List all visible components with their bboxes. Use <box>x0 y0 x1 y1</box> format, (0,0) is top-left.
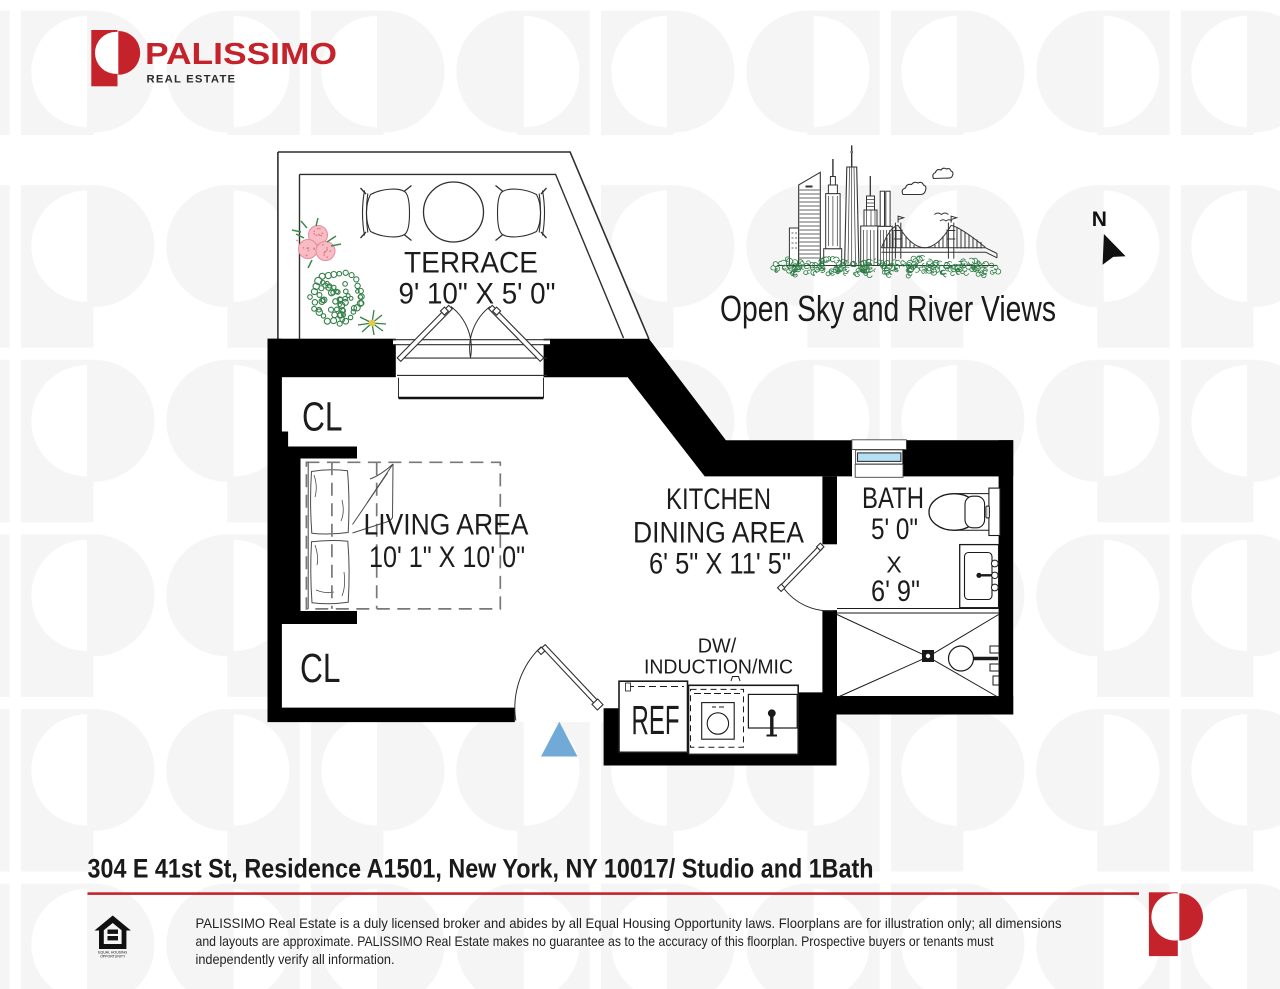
svg-text:6' 9": 6' 9" <box>871 575 920 608</box>
svg-text:INDUCTION/MIC: INDUCTION/MIC <box>644 657 793 679</box>
svg-text:DW/: DW/ <box>698 636 737 658</box>
svg-text:Open Sky and River Views: Open Sky and River Views <box>720 288 1056 329</box>
svg-text:OPPORTUNITY: OPPORTUNITY <box>100 954 126 958</box>
svg-text:CL: CL <box>300 645 341 691</box>
svg-text:5' 0": 5' 0" <box>871 513 918 546</box>
svg-text:X: X <box>886 552 901 578</box>
svg-text:independently verify all infor: independently verify all information. <box>196 952 395 967</box>
svg-text:PALISSIMO Real Estate is a dul: PALISSIMO Real Estate is a duly licensed… <box>196 916 1062 931</box>
svg-text:KITCHEN: KITCHEN <box>666 483 771 516</box>
svg-text:CL: CL <box>302 394 343 440</box>
svg-text:PALISSIMO: PALISSIMO <box>145 37 337 71</box>
svg-text:REAL ESTATE: REAL ESTATE <box>147 74 237 86</box>
svg-text:6' 5" X 11' 5": 6' 5" X 11' 5" <box>649 548 791 581</box>
svg-text:REF: REF <box>632 697 680 743</box>
svg-text:LIVING AREA: LIVING AREA <box>364 509 529 542</box>
svg-text:DINING AREA: DINING AREA <box>633 517 804 550</box>
svg-text:and layouts are approximate. P: and layouts are approximate. PALISSIMO R… <box>196 934 994 949</box>
svg-text:304 E 41st St, Residence A1501: 304 E 41st St, Residence A1501, New York… <box>88 854 874 884</box>
svg-text:N: N <box>1092 208 1107 231</box>
svg-text:BATH: BATH <box>862 482 924 515</box>
svg-text:9' 10" X 5' 0": 9' 10" X 5' 0" <box>399 278 556 311</box>
svg-text:10' 1" X 10' 0": 10' 1" X 10' 0" <box>369 541 525 574</box>
svg-text:TERRACE: TERRACE <box>404 247 538 280</box>
